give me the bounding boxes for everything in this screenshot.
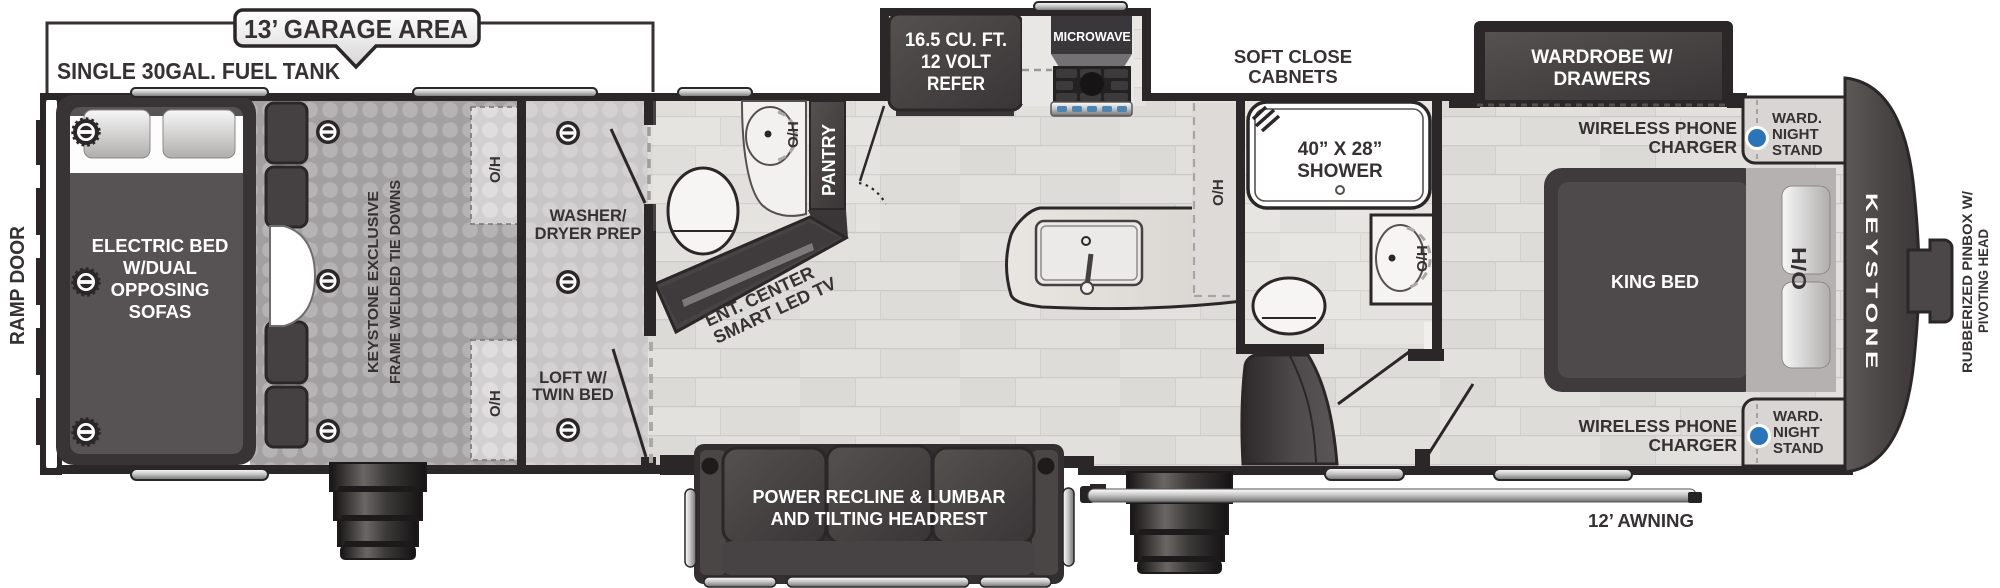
svg-text:PIVOTING HEAD: PIVOTING HEAD xyxy=(1976,229,1991,333)
svg-text:WARD.: WARD. xyxy=(1772,110,1822,127)
svg-text:RUBBERIZED PINBOX W/: RUBBERIZED PINBOX W/ xyxy=(1960,191,1975,373)
svg-text:WIRELESS PHONE: WIRELESS PHONE xyxy=(1579,416,1738,436)
svg-text:CABNETS: CABNETS xyxy=(1248,66,1337,87)
svg-text:FRAME WELDED TIE DOWNS: FRAME WELDED TIE DOWNS xyxy=(387,180,404,384)
svg-text:POWER RECLINE & LUMBAR: POWER RECLINE & LUMBAR xyxy=(753,487,1006,507)
svg-text:O/H: O/H xyxy=(1789,247,1811,290)
svg-text:SOFAS: SOFAS xyxy=(129,301,192,322)
svg-text:WIRELESS PHONE: WIRELESS PHONE xyxy=(1579,118,1738,138)
svg-text:SINGLE 30GAL. FUEL TANK: SINGLE 30GAL. FUEL TANK xyxy=(57,58,340,84)
svg-text:STAND: STAND xyxy=(1772,142,1823,159)
svg-text:12’ AWNING: 12’ AWNING xyxy=(1588,511,1694,531)
svg-text:WARDROBE W/: WARDROBE W/ xyxy=(1531,47,1673,68)
svg-text:O/H: O/H xyxy=(487,156,504,183)
svg-text:O/H: O/H xyxy=(1210,179,1227,206)
svg-text:DRYER PREP: DRYER PREP xyxy=(535,225,642,243)
svg-text:WARD.: WARD. xyxy=(1773,408,1823,425)
svg-text:DRAWERS: DRAWERS xyxy=(1553,69,1650,90)
svg-text:KEYSTONE EXCLUSIVE: KEYSTONE EXCLUSIVE xyxy=(365,191,382,373)
svg-text:TWIN BED: TWIN BED xyxy=(532,386,614,404)
svg-text:NIGHT: NIGHT xyxy=(1773,424,1820,441)
svg-text:AND TILTING HEADREST: AND TILTING HEADREST xyxy=(771,509,988,529)
svg-text:NIGHT: NIGHT xyxy=(1772,126,1819,143)
svg-text:O/H: O/H xyxy=(487,390,504,417)
svg-text:O/H: O/H xyxy=(785,121,802,148)
svg-text:PANTRY: PANTRY xyxy=(819,124,839,196)
svg-text:RAMP DOOR: RAMP DOOR xyxy=(7,225,29,345)
svg-text:CHARGER: CHARGER xyxy=(1649,137,1738,157)
svg-text:KEYSTONE: KEYSTONE xyxy=(1862,193,1881,373)
svg-text:LOFT W/: LOFT W/ xyxy=(539,369,607,387)
svg-text:STAND: STAND xyxy=(1773,440,1824,457)
svg-text:KING BED: KING BED xyxy=(1611,272,1699,292)
svg-text:SHOWER: SHOWER xyxy=(1297,161,1383,182)
svg-text:WASHER/: WASHER/ xyxy=(549,207,626,225)
svg-text:CHARGER: CHARGER xyxy=(1649,435,1738,455)
svg-text:OPPOSING: OPPOSING xyxy=(111,279,210,300)
svg-text:12 VOLT: 12 VOLT xyxy=(921,52,991,73)
svg-text:O/H: O/H xyxy=(1414,245,1431,272)
svg-text:REFER: REFER xyxy=(927,74,985,95)
svg-text:ELECTRIC BED: ELECTRIC BED xyxy=(92,235,229,256)
svg-text:16.5 CU. FT.: 16.5 CU. FT. xyxy=(905,30,1007,51)
svg-text:40” X 28”: 40” X 28” xyxy=(1298,139,1383,160)
svg-text:13’ GARAGE AREA: 13’ GARAGE AREA xyxy=(244,14,468,44)
svg-text:SOFT CLOSE: SOFT CLOSE xyxy=(1234,46,1352,67)
svg-text:MICROWAVE: MICROWAVE xyxy=(1053,30,1131,44)
svg-text:W/DUAL: W/DUAL xyxy=(123,257,197,278)
